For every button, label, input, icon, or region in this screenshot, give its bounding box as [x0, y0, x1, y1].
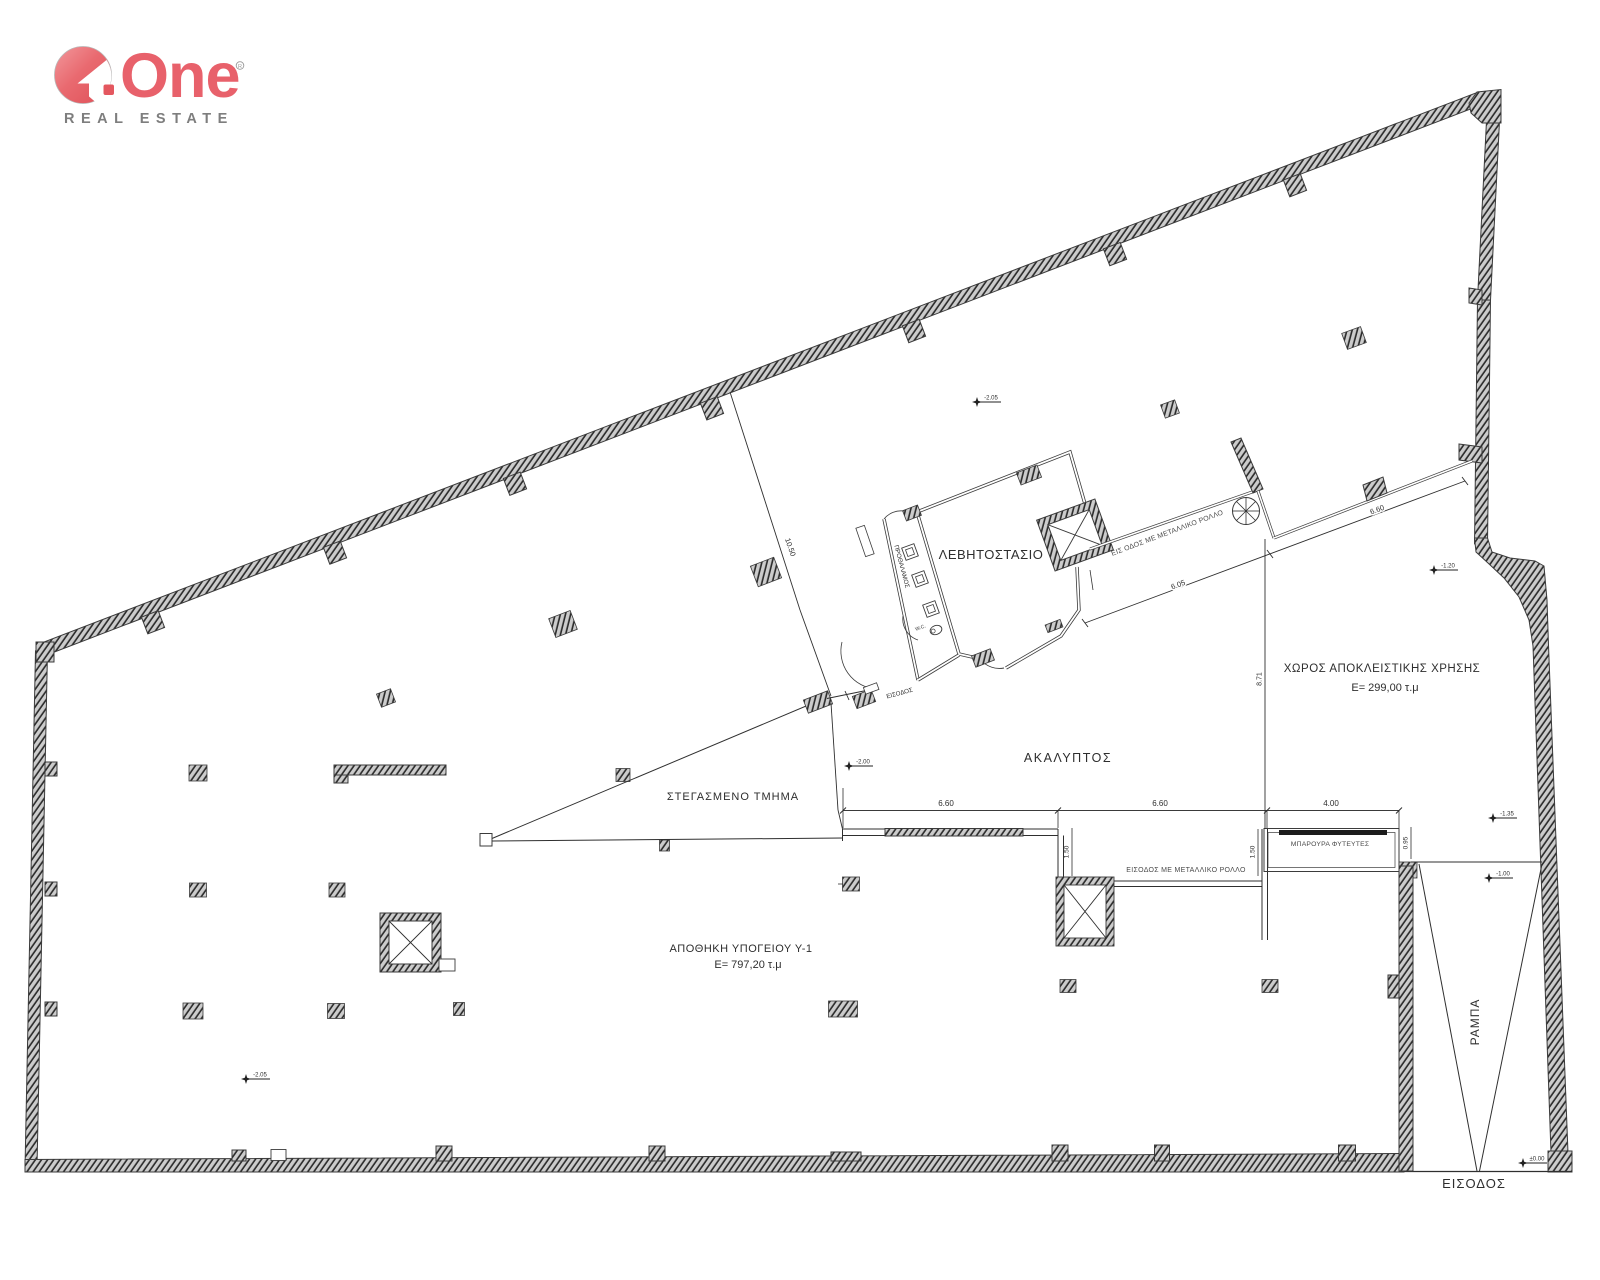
svg-text:1.50: 1.50: [1250, 845, 1257, 858]
svg-text:8.71: 8.71: [1257, 672, 1264, 686]
svg-text:W.C.: W.C.: [915, 623, 927, 632]
svg-text:ΧΩΡΟΣ ΑΠΟΚΛΕΙΣΤΙΚΗΣ ΧΡΗΣΗΣ: ΧΩΡΟΣ ΑΠΟΚΛΕΙΣΤΙΚΗΣ ΧΡΗΣΗΣ: [1284, 663, 1480, 675]
svg-text:ΡΑΜΠΑ: ΡΑΜΠΑ: [1468, 999, 1482, 1046]
svg-text:-1.00: -1.00: [1496, 872, 1510, 878]
svg-text:6.05: 6.05: [1170, 578, 1187, 592]
svg-text:ΕΙΣΟΔΟΣ: ΕΙΣΟΔΟΣ: [1442, 1176, 1506, 1191]
svg-text:-1.35: -1.35: [1500, 812, 1514, 818]
svg-text:6.60: 6.60: [938, 799, 954, 808]
svg-text:0.95: 0.95: [1403, 836, 1410, 849]
svg-text:ΛΕΒΗΤΟΣΤΑΣΙΟ: ΛΕΒΗΤΟΣΤΑΣΙΟ: [939, 547, 1044, 562]
svg-text:R: R: [238, 64, 242, 70]
svg-text:ΕΙΣΟΔΟΣ ΜΕ ΜΕΤΑΛΛΙΚΟ ΡΟΛΛΟ: ΕΙΣΟΔΟΣ ΜΕ ΜΕΤΑΛΛΙΚΟ ΡΟΛΛΟ: [1126, 867, 1246, 874]
svg-text:ΑΠΟΘΗΚΗ ΥΠΟΓΕΙΟΥ Υ-1: ΑΠΟΘΗΚΗ ΥΠΟΓΕΙΟΥ Υ-1: [669, 943, 812, 955]
svg-text:Ε= 797,20 τ.μ: Ε= 797,20 τ.μ: [714, 959, 781, 971]
svg-text:-2.05: -2.05: [984, 396, 998, 402]
svg-text:ΣΤΕΓΑΣΜΕΝΟ ΤΜΗΜΑ: ΣΤΕΓΑΣΜΕΝΟ ΤΜΗΜΑ: [667, 791, 799, 803]
svg-text:ΕΙΣΟΔΟΣ: ΕΙΣΟΔΟΣ: [886, 687, 914, 701]
svg-text:REAL ESTATE: REAL ESTATE: [64, 111, 234, 127]
svg-text:One: One: [120, 41, 240, 111]
svg-text:Ε= 299,00 τ.μ: Ε= 299,00 τ.μ: [1351, 682, 1418, 694]
svg-text:-1.20: -1.20: [1441, 564, 1455, 570]
svg-text:-2.00: -2.00: [856, 760, 870, 766]
svg-text:10.50: 10.50: [783, 537, 798, 558]
svg-text:-2.05: -2.05: [253, 1073, 267, 1079]
svg-text:6.60: 6.60: [1369, 503, 1386, 517]
svg-text:ΕΙΣ ΟΔΟΣ ΜΕ ΜΕΤΑΛΛΙΚΟ ΡΟΛΛΟ: ΕΙΣ ΟΔΟΣ ΜΕ ΜΕΤΑΛΛΙΚΟ ΡΟΛΛΟ: [1111, 509, 1225, 557]
svg-text:6.60: 6.60: [1152, 799, 1168, 808]
svg-text:1.50: 1.50: [1064, 845, 1071, 858]
svg-text:4.00: 4.00: [1323, 799, 1339, 808]
svg-text:ΜΠΑΡΟΥΡΑ ΦΥΤΕΥΤΕΣ: ΜΠΑΡΟΥΡΑ ΦΥΤΕΥΤΕΣ: [1291, 841, 1370, 848]
svg-text:±0.00: ±0.00: [1530, 1157, 1546, 1163]
svg-text:ΑΚΑΛΥΠΤΟΣ: ΑΚΑΛΥΠΤΟΣ: [1024, 751, 1112, 765]
